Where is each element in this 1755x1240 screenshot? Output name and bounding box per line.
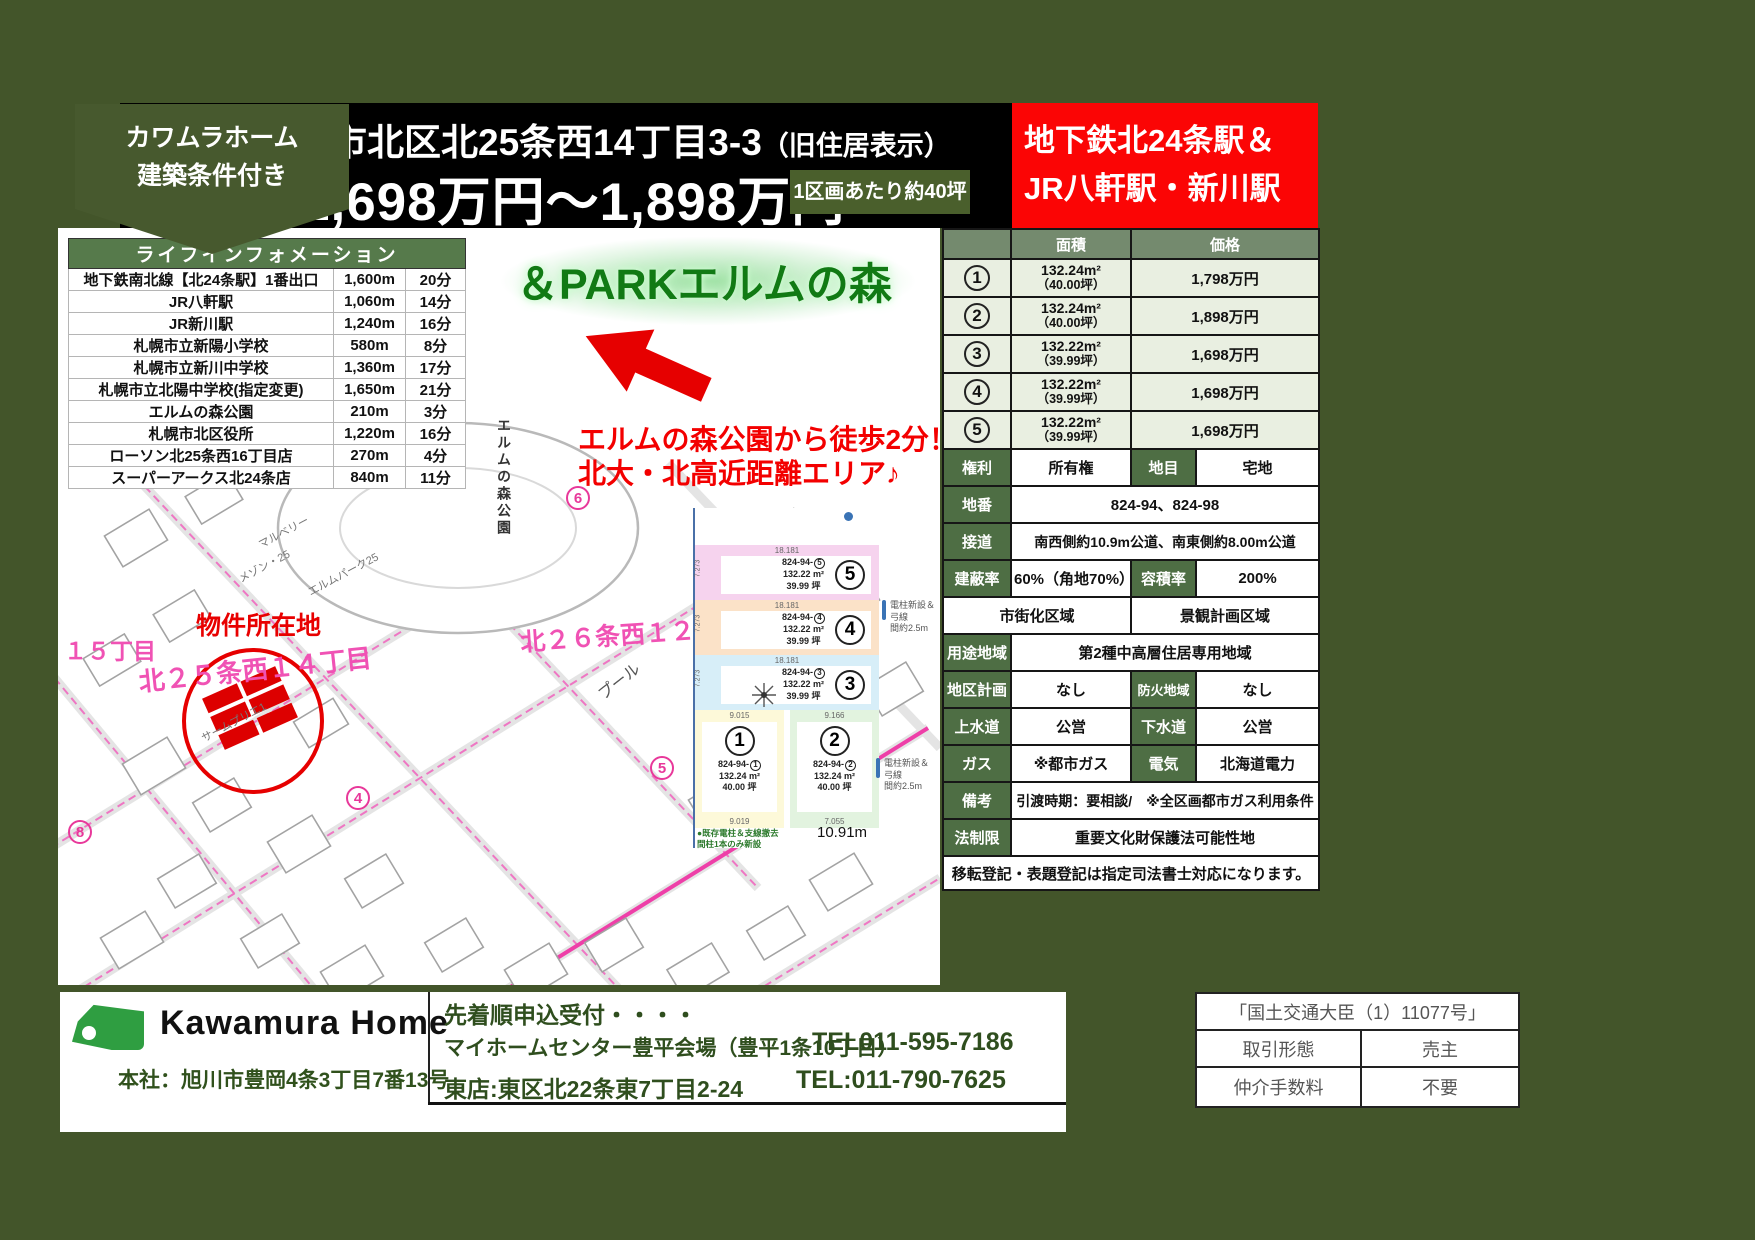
use-value: 第2種中高層住居専用地域 bbox=[1011, 634, 1319, 671]
pole-pin-icon bbox=[882, 600, 886, 620]
acceptance-note: 先着順申込受付・・・・ bbox=[444, 996, 697, 1030]
bottom-width-label: 10.91m bbox=[817, 824, 867, 841]
site-plan-lot-5: 18.181 7.273 824-94-5 132.22 m² 39.99 坪 … bbox=[695, 545, 879, 600]
lot-number-circle: 2 bbox=[820, 726, 850, 756]
rights-value: 所有権 bbox=[1011, 449, 1131, 486]
sewer-label: 下水道 bbox=[1131, 708, 1196, 745]
parcel-label: 地番 bbox=[943, 486, 1011, 523]
far-value: 200% bbox=[1196, 560, 1319, 597]
measure-top: 18.181 bbox=[695, 546, 879, 555]
law-label: 法制限 bbox=[943, 819, 1011, 856]
company-logo-notch bbox=[82, 1026, 96, 1040]
station-line2: JR八軒駅・新川駅 bbox=[1024, 165, 1318, 213]
life-info-row: ローソン北25条西16丁目店270m4分 bbox=[69, 445, 466, 467]
use-label: 用途地域 bbox=[943, 634, 1011, 671]
footer-underline bbox=[428, 1102, 1066, 1105]
gas-label: ガス bbox=[943, 745, 1011, 782]
life-info-row: 札幌市立新川中学校1,360m17分 bbox=[69, 357, 466, 379]
park-overlay-label: ＆PARKエルムの森 bbox=[516, 250, 892, 312]
law-value: 重要文化財保護法可能性地 bbox=[1011, 819, 1319, 856]
company-logo-icon bbox=[72, 1004, 144, 1050]
life-info-row: JR新川駅1,240m16分 bbox=[69, 313, 466, 335]
map-circled-number: 4 bbox=[346, 786, 370, 810]
parcel-value: 824-94、824-98 bbox=[1011, 486, 1319, 523]
venue1-phone: TEL011-595-7186 bbox=[812, 1028, 1014, 1057]
venue2-phone: TEL:011-790-7625 bbox=[796, 1066, 1006, 1095]
map-circled-number: 5 bbox=[650, 756, 674, 780]
compass-icon bbox=[751, 682, 777, 708]
parcel-number: 824-94-5 bbox=[782, 557, 825, 569]
sewer-value: 公営 bbox=[1196, 708, 1319, 745]
lot-number-circle: 3 bbox=[835, 670, 865, 700]
lot-row: 5132.22m²（39.99坪）1,698万円 bbox=[943, 411, 1319, 449]
station-line1: 地下鉄北24条駅＆ bbox=[1024, 117, 1318, 165]
life-info-row: 札幌市立北陽中学校(指定変更)1,650m21分 bbox=[69, 379, 466, 401]
license-number: 「国土交通大臣（1）11077号」 bbox=[1196, 993, 1519, 1030]
lot-tsubo: 39.99 坪 bbox=[782, 581, 825, 593]
park-name-vertical: エルムの森公園 bbox=[494, 418, 514, 537]
road-label: 接道 bbox=[943, 523, 1011, 560]
life-info-row: JR八軒駅1,060m14分 bbox=[69, 291, 466, 313]
far-label: 容積率 bbox=[1131, 560, 1196, 597]
elec-label: 電気 bbox=[1131, 745, 1196, 782]
lot-area: 132.22 m² bbox=[782, 569, 825, 581]
venue2-address: 東店:東区北22条東7丁目2-24 bbox=[444, 1070, 743, 1104]
site-location-label: 物件所在地 bbox=[196, 606, 321, 642]
rights-label: 権利 bbox=[943, 449, 1011, 486]
badge-line1: カワムラホーム bbox=[75, 120, 349, 158]
lot-row: 1132.24m²（40.00坪）1,798万円 bbox=[943, 259, 1319, 297]
address-note: （旧住居表示） bbox=[762, 131, 951, 161]
land-cat-label: 地目 bbox=[1131, 449, 1196, 486]
lot-size-note: 1区画あたり約40坪 bbox=[790, 170, 970, 214]
district-label: 地区計画 bbox=[943, 671, 1011, 708]
site-plan-lot-1: 9.015 1 824-94-1 132.24 m² 40.00 坪 9.019 bbox=[695, 710, 784, 828]
fee-label: 仲介手数料 bbox=[1196, 1067, 1361, 1107]
elec-value: 北海道電力 bbox=[1196, 745, 1319, 782]
fee-value: 不要 bbox=[1361, 1067, 1519, 1107]
pole-pin-icon bbox=[876, 758, 880, 778]
deal-type-value: 売主 bbox=[1361, 1030, 1519, 1067]
lot-number-circle: 4 bbox=[835, 615, 865, 645]
life-info-row: 札幌市北区役所1,220m16分 bbox=[69, 423, 466, 445]
lot-row: 3132.22m²（39.99坪）1,698万円 bbox=[943, 335, 1319, 373]
bcr-label: 建蔽率 bbox=[943, 560, 1011, 597]
deal-type-label: 取引形態 bbox=[1196, 1030, 1361, 1067]
land-cat-value: 宅地 bbox=[1196, 449, 1319, 486]
water-label: 上水道 bbox=[943, 708, 1011, 745]
flyer-page: 札幌市北区北25条西14丁目3-3（旧住居表示） 1,698万円～1,898万円… bbox=[0, 0, 1755, 1240]
price-range: 1,698万円～1,898万円 bbox=[300, 160, 845, 236]
site-plan-lot-2: 9.166 2 824-94-2 132.24 m² 40.00 坪 7.055 bbox=[790, 710, 879, 828]
road-value: 南西側約10.9m公道、南東側約8.00m公道 bbox=[1011, 523, 1319, 560]
life-info-row: スーパーアークス北24条店840m11分 bbox=[69, 467, 466, 489]
site-plan-lot-4: 18.181 7.273 824-94-4 132.22 m² 39.99 坪 … bbox=[695, 600, 879, 655]
lot-number-circle: 1 bbox=[725, 726, 755, 756]
lot-row: 2132.24m²（40.00坪）1,898万円 bbox=[943, 297, 1319, 335]
site-plan-lot-3: 18.181 7.273 824-94-3 132.22 m² 39.99 坪 bbox=[695, 655, 879, 710]
water-value: 公営 bbox=[1011, 708, 1131, 745]
site-plan-legend: ●既存電柱＆支線撤去 間柱1本のみ新設 bbox=[697, 828, 779, 850]
headquarters-address: 本社：旭川市豊岡4条3丁目7番13号 bbox=[118, 1064, 449, 1094]
company-name: Kawamura Home bbox=[160, 1004, 449, 1043]
footer-divider bbox=[428, 992, 430, 1104]
life-info-title: ライフインフォメーション bbox=[69, 239, 466, 269]
zone2-value: 景観計画区域 bbox=[1131, 597, 1319, 634]
property-details-table: 面積 価格 1132.24m²（40.00坪）1,798万円2132.24m²（… bbox=[942, 228, 1320, 891]
col-header-price: 価格 bbox=[1131, 229, 1319, 259]
parcel-number: 824-94-3 bbox=[782, 667, 825, 679]
bcr-value: 60%（角地70%） bbox=[1011, 560, 1131, 597]
map-pin-dot bbox=[844, 512, 853, 521]
catch-copy-line2: 北大・北高近距離エリア♪ bbox=[578, 452, 900, 492]
remarks-label: 備考 bbox=[943, 782, 1011, 819]
remarks-value: 引渡時期：要相談/ ※全区画都市ガス利用条件 bbox=[1011, 782, 1319, 819]
map-circled-number: 8 bbox=[68, 820, 92, 844]
license-table: 「国土交通大臣（1）11077号」 取引形態 売主 仲介手数料 不要 bbox=[1195, 992, 1520, 1108]
pole-note-1: 電柱新設＆弓線 間約2.5m bbox=[882, 600, 938, 635]
details-corner-cell bbox=[943, 229, 1011, 259]
pole-note-2: 電柱新設＆弓線 間約2.5m bbox=[876, 758, 932, 793]
life-info-row: 札幌市立新陽小学校580m8分 bbox=[69, 335, 466, 357]
station-banner: 地下鉄北24条駅＆ JR八軒駅・新川駅 bbox=[1012, 103, 1318, 228]
registration-note: 移転登記・表題登記は指定司法書士対応になります。 bbox=[943, 856, 1319, 890]
map-circled-number: 6 bbox=[566, 486, 590, 510]
fire-value: なし bbox=[1196, 671, 1319, 708]
col-header-area: 面積 bbox=[1011, 229, 1131, 259]
lot-number-circle: 5 bbox=[835, 560, 865, 590]
gas-value: ※都市ガス bbox=[1011, 745, 1131, 782]
parcel-number: 824-94-2 bbox=[813, 759, 856, 771]
site-plan: 18.181 7.273 824-94-5 132.22 m² 39.99 坪 … bbox=[693, 508, 879, 848]
life-info-row: エルムの森公園210m3分 bbox=[69, 401, 466, 423]
lot-row: 4132.22m²（39.99坪）1,698万円 bbox=[943, 373, 1319, 411]
fire-label: 防火地域 bbox=[1131, 671, 1196, 708]
zone1-value: 市街化区域 bbox=[943, 597, 1131, 634]
parcel-number: 824-94-4 bbox=[782, 612, 825, 624]
property-address: 札幌市北区北25条西14丁目3-3（旧住居表示） bbox=[256, 112, 951, 166]
footer: Kawamura Home 本社：旭川市豊岡4条3丁目7番13号 先着順申込受付… bbox=[60, 992, 1066, 1132]
life-information-table: ライフインフォメーション 地下鉄南北線【北24条駅】1番出口1,600m20分J… bbox=[68, 238, 466, 489]
district-value: なし bbox=[1011, 671, 1131, 708]
parcel-number: 824-94-1 bbox=[718, 759, 761, 771]
measure-side: 7.273 bbox=[694, 560, 701, 578]
badge-line2: 建築条件付き bbox=[75, 158, 349, 196]
life-info-row: 地下鉄南北線【北24条駅】1番出口1,600m20分 bbox=[69, 269, 466, 291]
